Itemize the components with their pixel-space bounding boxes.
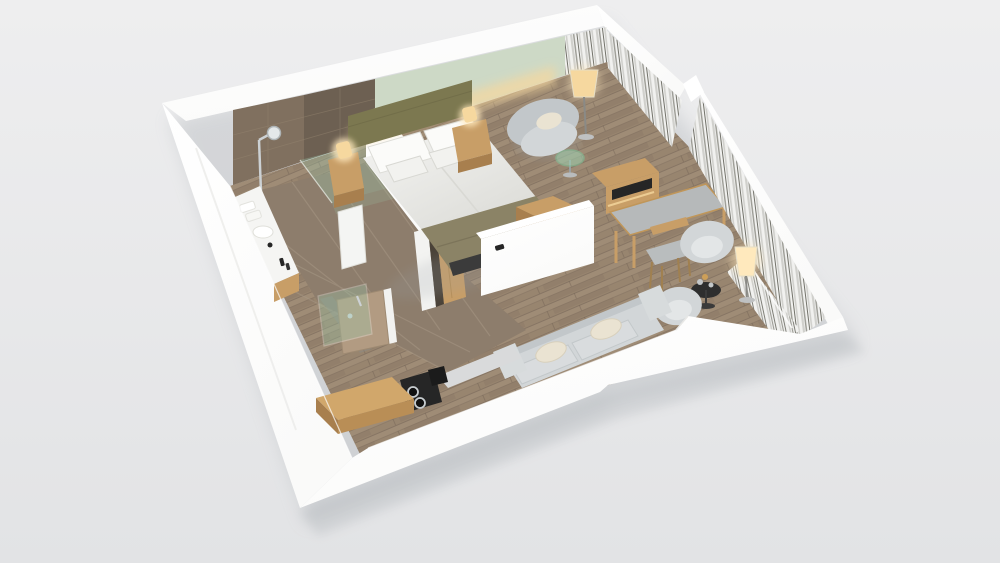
sink-basin	[253, 226, 273, 238]
lamp-shade	[570, 70, 598, 97]
floorplan-3d-render	[0, 0, 1000, 563]
mirror-panel	[338, 205, 366, 269]
whiskey-decanter	[702, 274, 708, 280]
faucet	[268, 243, 273, 248]
east-lamp-shade	[735, 247, 757, 276]
shower-head	[268, 127, 281, 140]
scene-svg	[0, 0, 1000, 563]
glass-decanter	[697, 279, 703, 285]
